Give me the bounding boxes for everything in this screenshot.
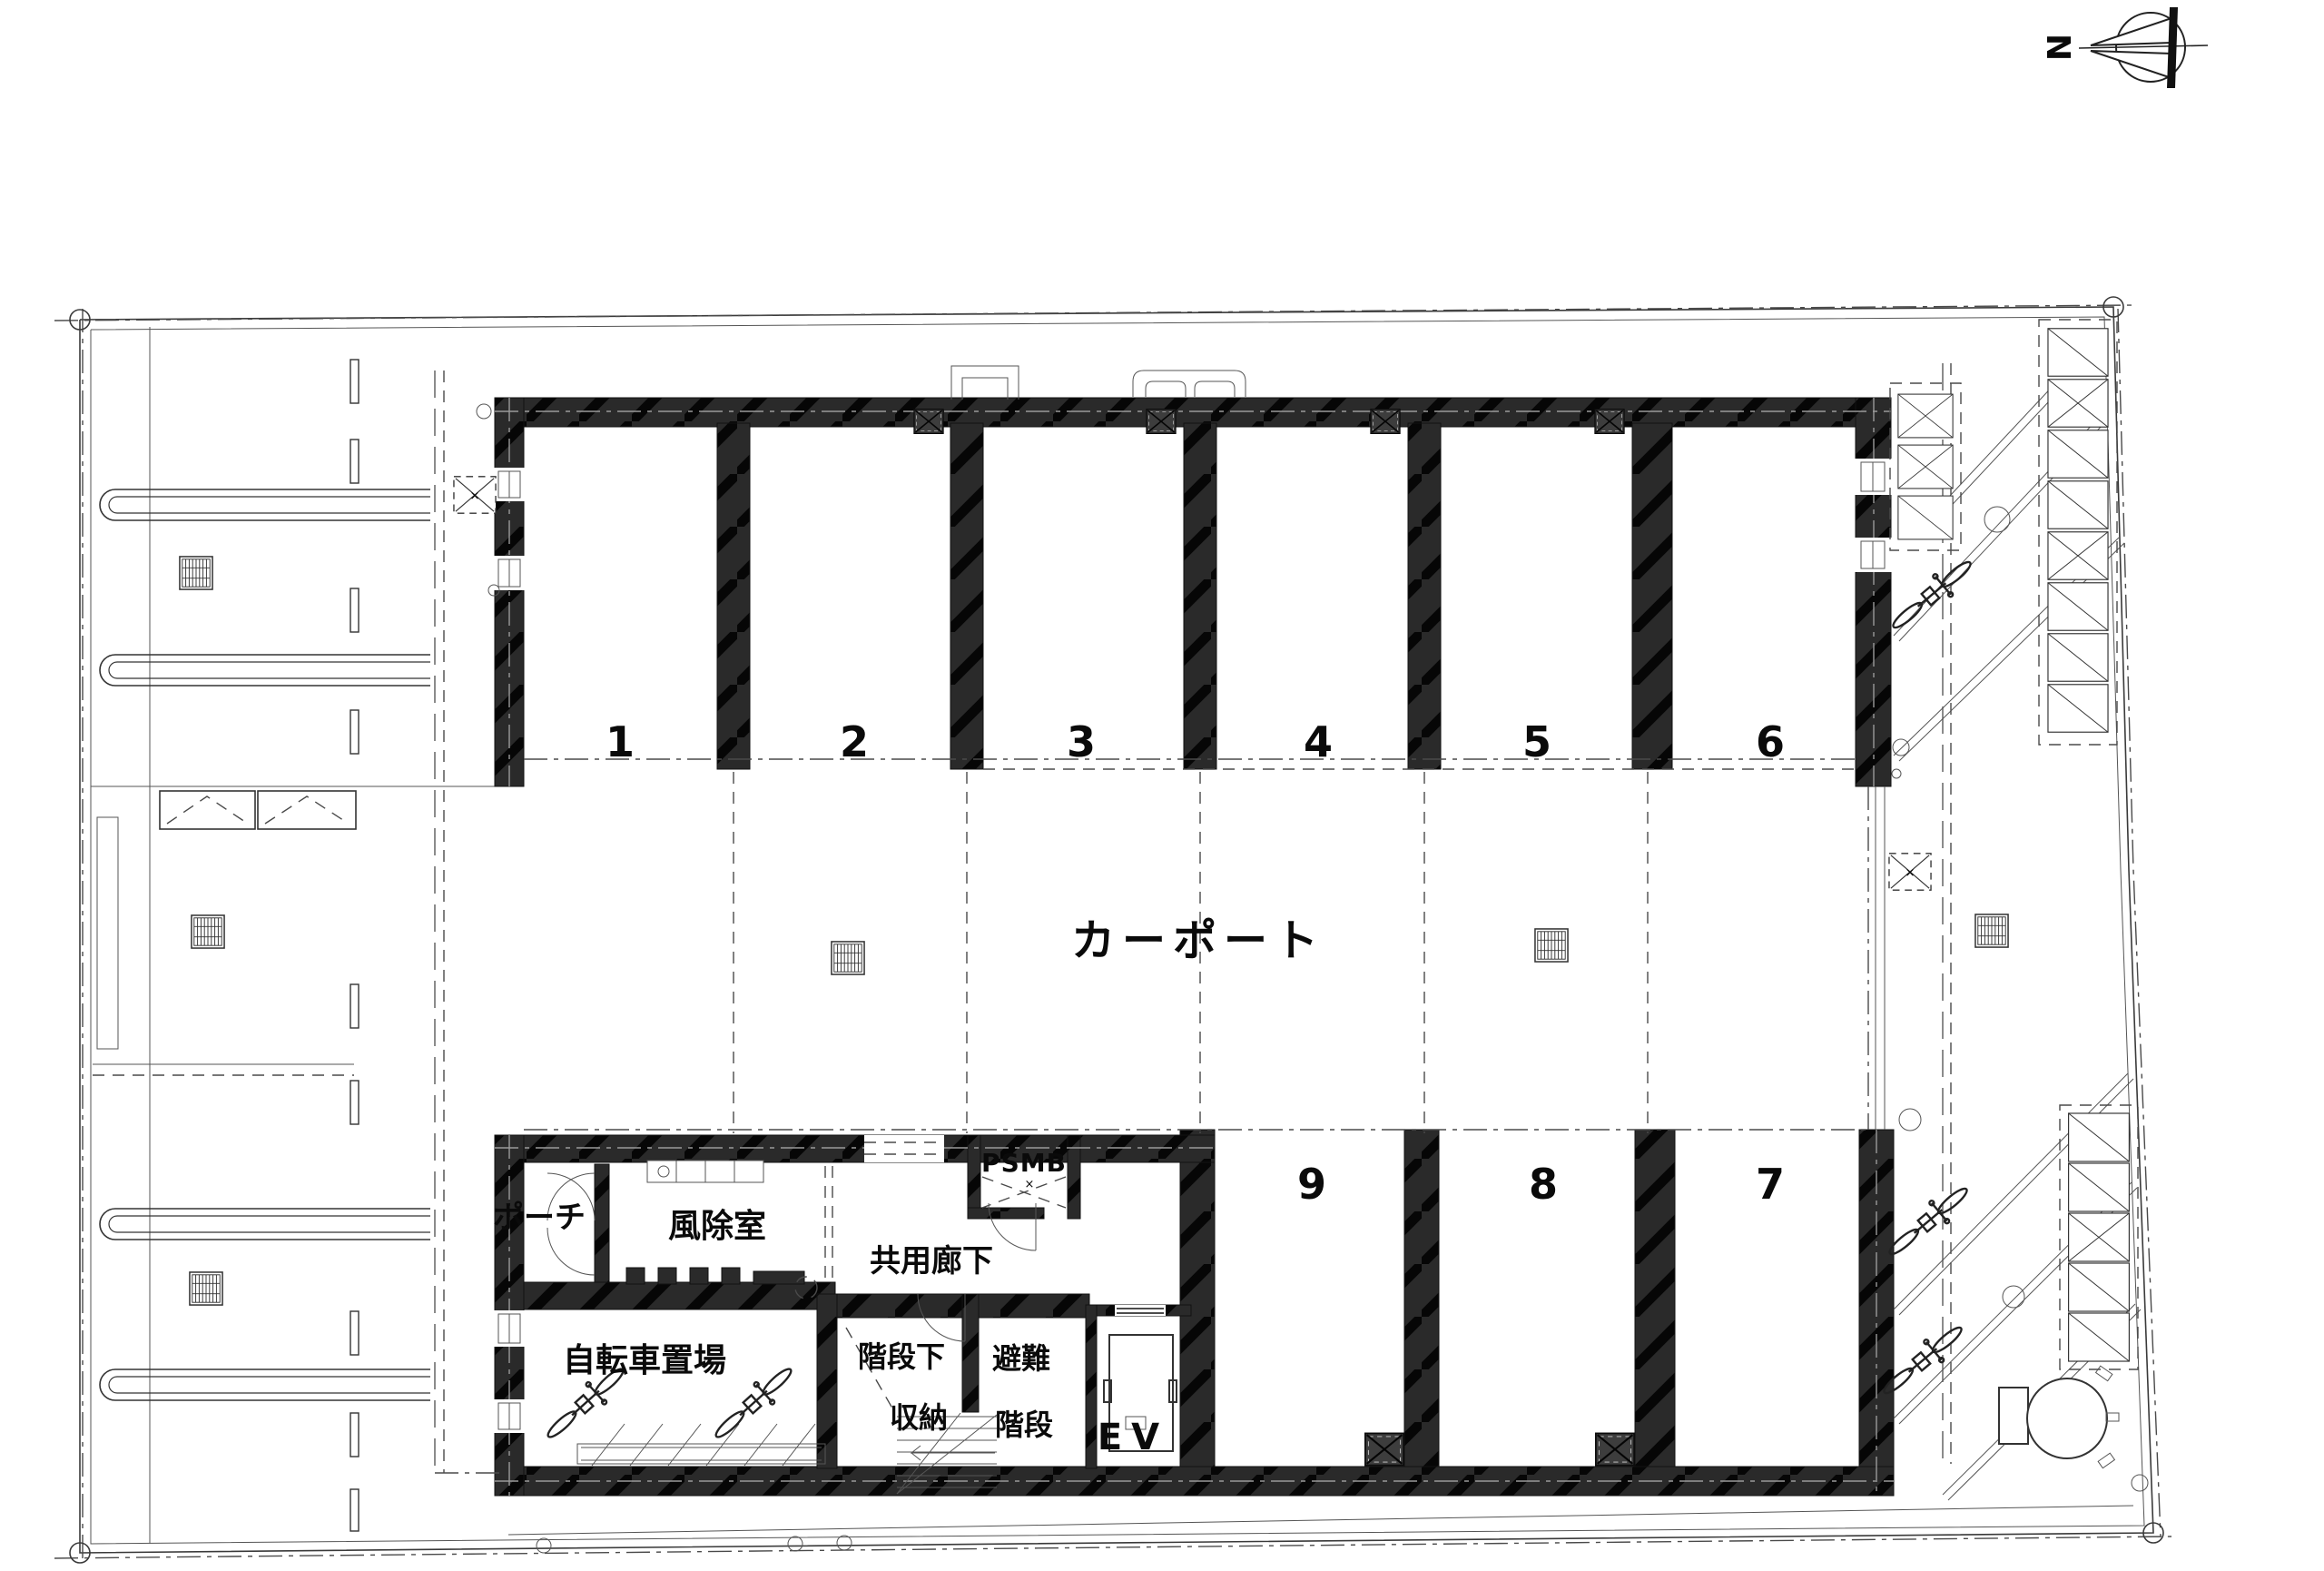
tree-icon [2003, 1286, 2024, 1308]
porch-label: ポーチ [493, 1200, 586, 1236]
psmb-label: PSMB [981, 1148, 1067, 1178]
planter-strip [97, 817, 118, 1049]
drain-grate [1975, 914, 2008, 947]
psmb-shaft: × [982, 1177, 1066, 1208]
bicycle-parking-label: 自転車置場 [563, 1342, 726, 1379]
drain-grate [192, 915, 224, 948]
compass: N [2042, 7, 2208, 88]
under-stair-storage-label-1: 階段下 [858, 1339, 945, 1374]
shaft-marker [1889, 854, 1931, 890]
under-stair-storage-label-2: 収納 [890, 1400, 948, 1435]
entrance-interior: × [539, 1161, 1177, 1494]
escape-stair-label-2: 階段 [995, 1408, 1053, 1442]
floor-plan-drawing: × [0, 0, 2324, 1571]
stall-number-3: 3 [1067, 717, 1096, 766]
floor-plan-canvas: × [0, 0, 2324, 1571]
escape-stair-label-1: 避難 [992, 1341, 1050, 1376]
svg-text:×: × [1025, 1178, 1035, 1191]
windbreak-room-label: 風除室 [668, 1208, 766, 1245]
stall-number-1: 1 [606, 717, 635, 766]
drain-grate [832, 942, 864, 974]
carport-label: カーポート [1071, 915, 1325, 966]
compass-north-label: N [2042, 34, 2079, 61]
folding-gate [160, 791, 356, 829]
drain-grate [190, 1272, 222, 1305]
drain-grate [1535, 929, 1568, 962]
stall-number-5: 5 [1522, 717, 1551, 766]
tree-icon [1984, 507, 2010, 532]
stall-number-7: 7 [1756, 1160, 1785, 1209]
bicycle-racks [577, 1424, 825, 1466]
bicycle-icon [1885, 552, 1979, 637]
tree-icon [1899, 1109, 1921, 1131]
right-landscape [1876, 320, 2141, 1500]
shaft-marker [454, 477, 496, 513]
canopy-line-west [435, 371, 500, 1473]
bicycle-icon [1881, 1179, 1975, 1264]
elevator-label: EV [1098, 1417, 1168, 1458]
stall-number-8: 8 [1529, 1160, 1558, 1209]
drain-grate [180, 557, 212, 589]
left-driveway-area [91, 327, 495, 1544]
water-tank [1999, 1366, 2119, 1468]
stall-number-4: 4 [1304, 717, 1333, 766]
lane-marker-dashes [350, 360, 359, 1531]
common-corridor-label: 共用廊下 [870, 1243, 993, 1280]
stall-number-9: 9 [1297, 1160, 1326, 1209]
stall-number-6: 6 [1756, 717, 1785, 766]
stall-number-2: 2 [840, 717, 869, 766]
north-arrow-icon [2091, 18, 2171, 45]
rooftop-elements [951, 366, 1246, 400]
